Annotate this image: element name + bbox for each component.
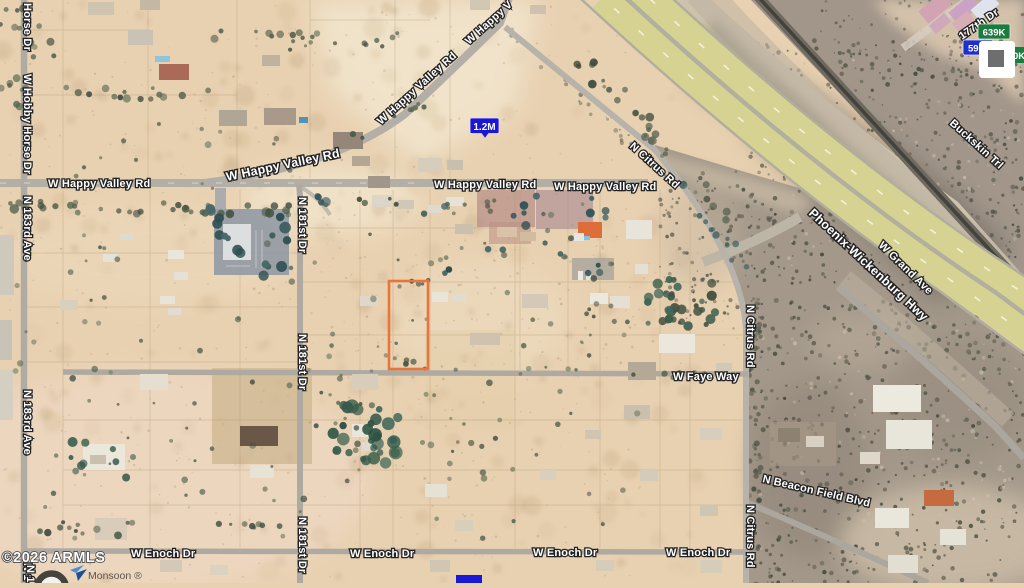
- svg-text:W Happy Valley Rd: W Happy Valley Rd: [48, 178, 150, 190]
- svg-text:N Citrus Rd: N Citrus Rd: [744, 505, 756, 568]
- svg-text:N 181st Dr: N 181st Dr: [296, 197, 308, 254]
- svg-text:639K: 639K: [983, 28, 1006, 39]
- svg-text:©2026 ARMLS: ©2026 ARMLS: [2, 550, 105, 566]
- svg-text:W Enoch Dr: W Enoch Dr: [350, 548, 415, 560]
- svg-text:W Happy Valley Rd: W Happy Valley Rd: [554, 181, 656, 193]
- svg-text:N 183rd Ave: N 183rd Ave: [21, 196, 33, 261]
- svg-text:W Faye Way: W Faye Way: [673, 371, 739, 383]
- svg-text:59: 59: [968, 44, 979, 55]
- svg-text:N 183rd Ave: N 183rd Ave: [21, 390, 33, 455]
- svg-text:W Enoch Dr: W Enoch Dr: [131, 548, 196, 560]
- svg-text:1.2M: 1.2M: [473, 122, 495, 133]
- svg-text:W Hobby Horse Dr: W Hobby Horse Dr: [21, 74, 33, 175]
- svg-text:Horse Dr: Horse Dr: [21, 3, 33, 52]
- svg-text:Monsoon ®: Monsoon ®: [88, 570, 142, 582]
- svg-text:W Enoch Dr: W Enoch Dr: [666, 547, 731, 559]
- svg-text:W Enoch Dr: W Enoch Dr: [533, 547, 598, 559]
- svg-text:N 1: N 1: [24, 565, 36, 583]
- svg-text:N 181st Dr: N 181st Dr: [296, 517, 308, 574]
- svg-text:N Citrus Rd: N Citrus Rd: [744, 305, 756, 368]
- svg-text:W Happy Valley Rd: W Happy Valley Rd: [434, 179, 536, 191]
- svg-text:N 181st Dr: N 181st Dr: [296, 334, 308, 391]
